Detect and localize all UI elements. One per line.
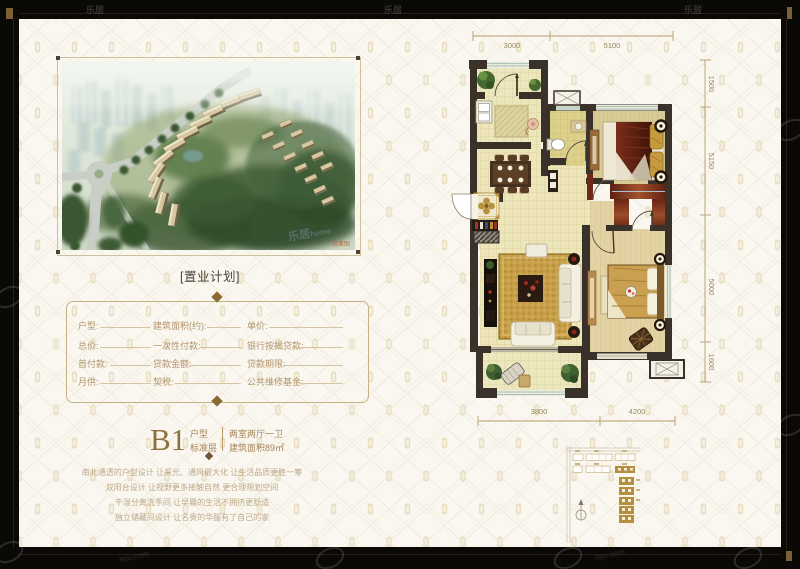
svg-text:5100: 5100 (604, 41, 621, 50)
svg-text:5000: 5000 (707, 279, 716, 296)
svg-text:1600: 1600 (707, 354, 716, 371)
svg-text:4200: 4200 (629, 407, 646, 416)
svg-text:5150: 5150 (707, 153, 716, 170)
svg-text:3800: 3800 (531, 407, 548, 416)
svg-text:3000: 3000 (504, 41, 521, 50)
svg-text:1500: 1500 (707, 76, 716, 93)
